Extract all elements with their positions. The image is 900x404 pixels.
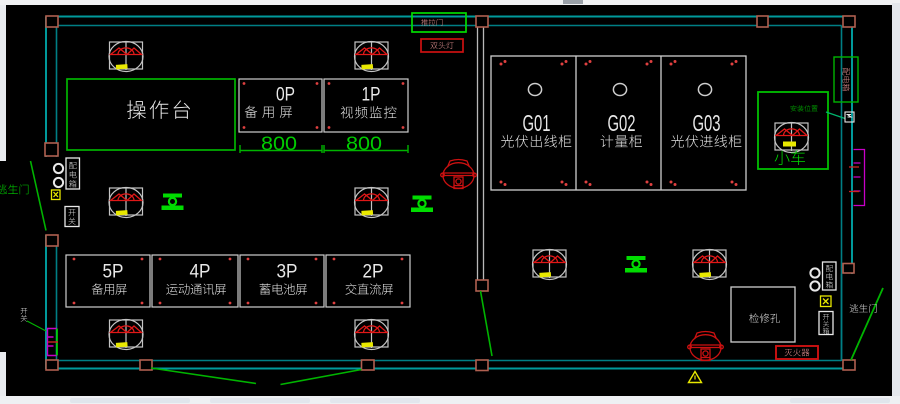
svg-text:G01: G01 [523,110,551,136]
svg-text:5P: 5P [103,262,124,283]
svg-text:2P: 2P [363,262,384,283]
svg-text:4P: 4P [190,262,211,283]
svg-text:0P: 0P [276,84,295,106]
svg-text:G02: G02 [608,110,636,136]
svg-text:G03: G03 [693,110,721,136]
svg-text:1P: 1P [362,84,381,106]
svg-text:3P: 3P [277,262,298,283]
svg-text:800: 800 [346,134,382,155]
svg-text:800: 800 [261,134,297,155]
